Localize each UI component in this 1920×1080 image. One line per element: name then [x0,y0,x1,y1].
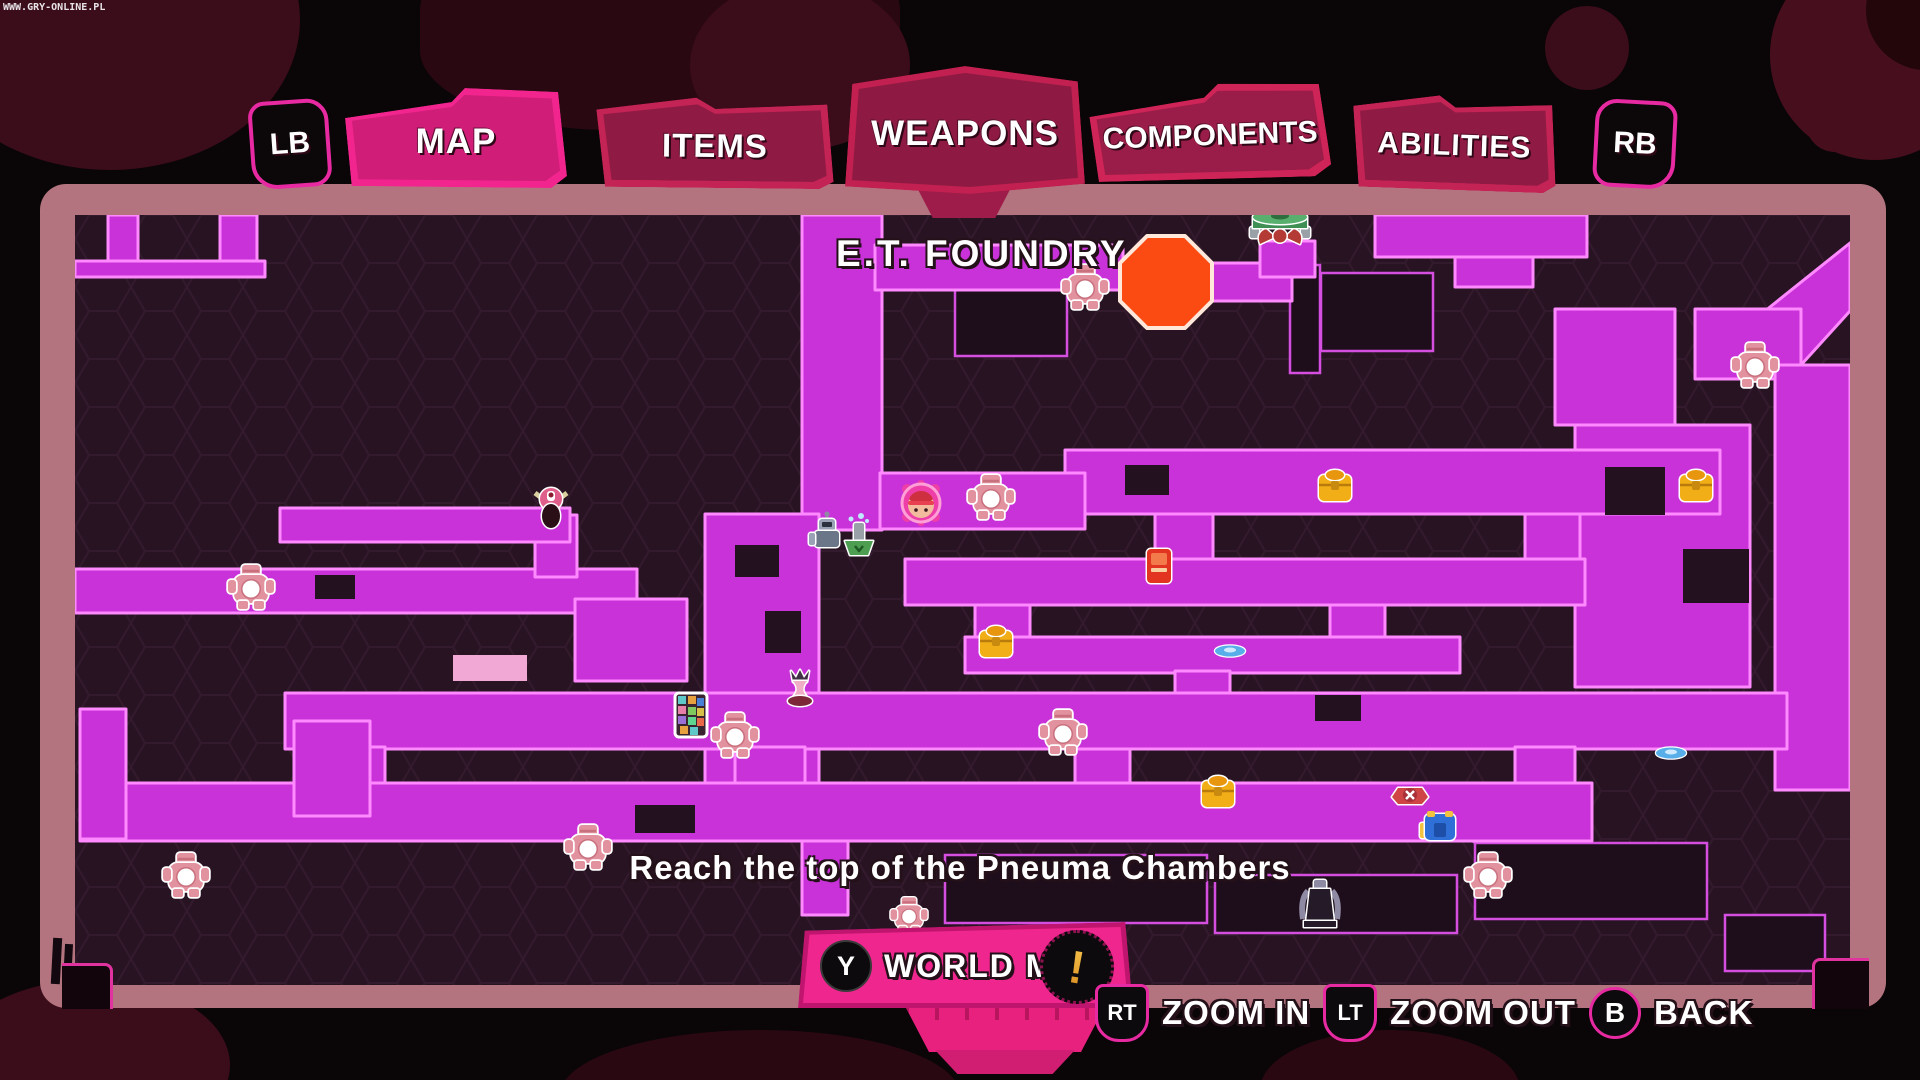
treasure-chest-icon [1319,470,1351,501]
tab-map-label: MAP [345,88,567,188]
banner-jaw [905,1006,1105,1052]
grinder-machine-icon [1250,215,1310,244]
mosaic-wall-icon [675,693,707,737]
tab-weapons[interactable]: WEAPONS [845,66,1085,194]
tab-abilities[interactable]: ABILITIES [1350,90,1558,193]
tab-abilities-label: ABILITIES [1350,90,1558,193]
zoom-out-label: ZOOM OUT [1390,994,1576,1032]
objective-text: Reach the top of the Pneuma Chambers [0,849,1920,887]
b-button[interactable]: B [1589,987,1641,1039]
tab-components[interactable]: COMPONENTS [1088,80,1331,184]
treasure-chest-icon [1680,470,1712,501]
tab-items[interactable]: ITEMS [596,95,835,189]
control-hints: RT ZOOM IN LT ZOOM OUT B BACK [1095,984,1753,1042]
blue-chest-icon [1420,811,1455,840]
platform-icon [1656,748,1686,759]
tab-weapons-label: WEAPONS [845,66,1085,194]
platform-icon [1215,646,1245,657]
rt-button[interactable]: RT [1095,984,1149,1042]
tab-items-label: ITEMS [596,95,835,189]
treasure-chest-icon [980,626,1012,657]
background-machinery [1806,94,1864,152]
right-bumper-button[interactable]: RB [1592,98,1678,190]
player-location-icon [902,480,940,526]
tab-map[interactable]: MAP [345,88,567,188]
zoom-in-label: ZOOM IN [1162,994,1310,1032]
y-button[interactable]: Y [820,940,872,992]
banner-jaw [935,1050,1075,1074]
left-bumper-button[interactable]: LB [247,97,333,190]
back-label: BACK [1654,994,1753,1032]
background-machinery [1866,0,1920,70]
lt-button[interactable]: LT [1323,984,1377,1042]
treasure-chest-icon [1202,776,1234,807]
site-watermark: WWW.GRY-ONLINE.PL [3,2,105,13]
game-screen: WWW.GRY-ONLINE.PL [0,0,1920,1080]
frame-notch [62,963,113,1009]
background-machinery [560,1030,960,1080]
sealed-platform-icon [1392,788,1428,804]
vending-machine-icon [1147,549,1171,583]
objective-octagon [1120,236,1212,328]
tab-components-label: COMPONENTS [1088,80,1331,184]
frame-notch [1812,958,1869,1009]
region-title: E.T. FOUNDRY [836,233,1128,275]
special-corridor [453,655,527,681]
background-machinery [1545,6,1629,90]
